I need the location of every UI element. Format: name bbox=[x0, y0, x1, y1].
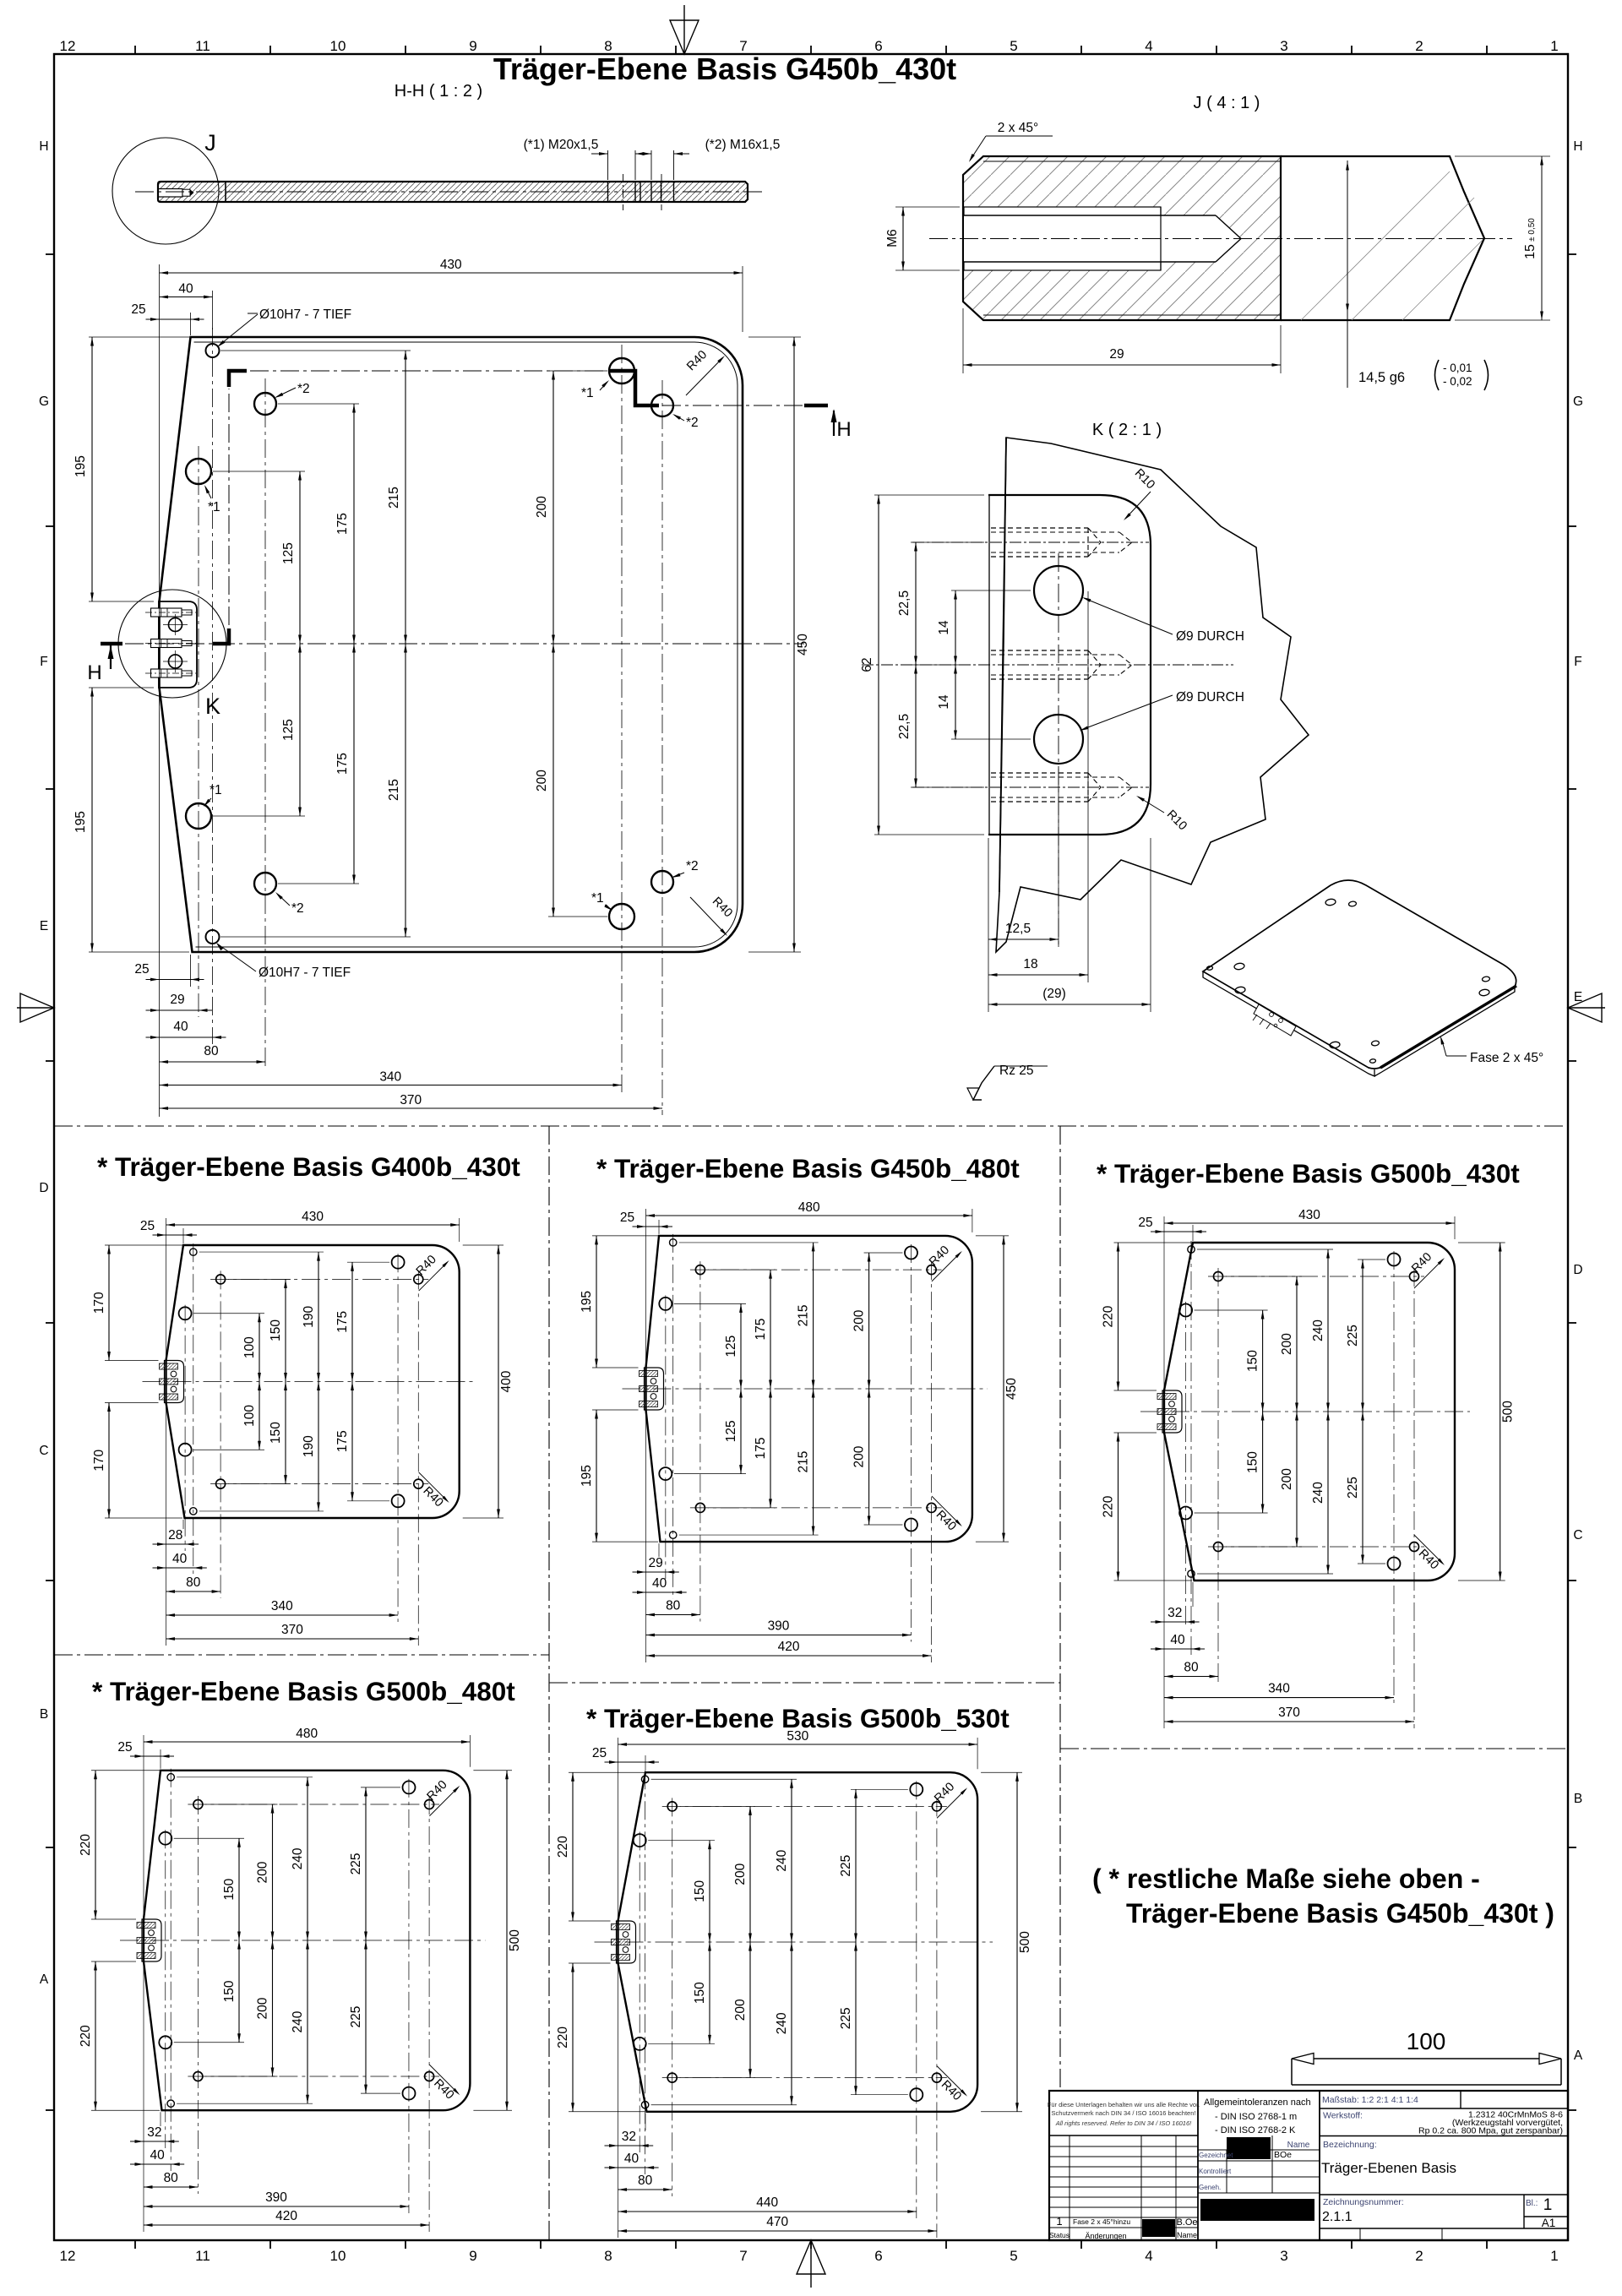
svg-text:175: 175 bbox=[754, 1319, 768, 1341]
svg-text:125: 125 bbox=[724, 1336, 738, 1357]
svg-text:6: 6 bbox=[874, 2248, 882, 2264]
svg-text:480: 480 bbox=[798, 1200, 820, 1215]
svg-text:150: 150 bbox=[269, 1319, 283, 1341]
svg-text:* Träger-Ebene Basis G500b_480: * Träger-Ebene Basis G500b_480t bbox=[92, 1676, 515, 1706]
svg-text:150: 150 bbox=[222, 1980, 237, 2002]
svg-text:29: 29 bbox=[1109, 347, 1124, 362]
svg-text:Kontrolliert: Kontrolliert bbox=[1199, 2168, 1232, 2175]
svg-text:340: 340 bbox=[1268, 1682, 1290, 1696]
svg-text:1: 1 bbox=[1056, 2215, 1062, 2228]
svg-text:9: 9 bbox=[469, 38, 476, 54]
svg-text:200: 200 bbox=[1280, 1333, 1294, 1355]
svg-text:14: 14 bbox=[937, 620, 951, 635]
svg-text:Änderungen: Änderungen bbox=[1085, 2232, 1126, 2240]
svg-text:125: 125 bbox=[281, 719, 296, 741]
svg-text:170: 170 bbox=[92, 1449, 106, 1471]
svg-text:7: 7 bbox=[739, 2248, 747, 2264]
svg-text:( * restliche Maße siehe oben: ( * restliche Maße siehe oben - bbox=[1092, 1863, 1480, 1894]
svg-text:E: E bbox=[40, 919, 48, 933]
svg-text:B: B bbox=[40, 1707, 48, 1722]
svg-text:175: 175 bbox=[335, 1430, 350, 1452]
svg-text:200: 200 bbox=[1280, 1468, 1294, 1490]
svg-text:H: H bbox=[39, 139, 48, 154]
svg-text:4: 4 bbox=[1145, 2248, 1152, 2264]
svg-text:220: 220 bbox=[79, 2025, 93, 2047]
svg-text:390: 390 bbox=[768, 1619, 790, 1634]
svg-text:100: 100 bbox=[242, 1336, 257, 1358]
svg-text:500: 500 bbox=[508, 1929, 522, 1951]
svg-text:25: 25 bbox=[620, 1211, 634, 1225]
svg-text:190: 190 bbox=[302, 1435, 316, 1457]
svg-text:Zeichnungsnummer:: Zeichnungsnummer: bbox=[1323, 2197, 1404, 2207]
svg-text:220: 220 bbox=[556, 1836, 570, 1858]
svg-text:Fase 2 x 45°hinzu: Fase 2 x 45°hinzu bbox=[1073, 2217, 1130, 2226]
svg-text:195: 195 bbox=[73, 455, 88, 477]
svg-text:25: 25 bbox=[592, 1746, 607, 1760]
svg-text:430: 430 bbox=[1298, 1208, 1320, 1222]
svg-text:4: 4 bbox=[1145, 38, 1152, 54]
svg-text:*1: *1 bbox=[581, 386, 594, 400]
svg-text:200: 200 bbox=[535, 496, 549, 518]
svg-text:2 x 45°: 2 x 45° bbox=[998, 121, 1038, 135]
svg-text:Maßstab: 1:2 2:1 4:1 1:: Maßstab: 1:2 2:1 4:1 1:4 bbox=[1322, 2095, 1418, 2105]
svg-text:Werkstoff:: Werkstoff: bbox=[1323, 2111, 1363, 2121]
svg-text:H: H bbox=[836, 418, 851, 441]
svg-text:11: 11 bbox=[195, 38, 210, 54]
svg-text:- DIN ISO 2768-1 m: - DIN ISO 2768-1 m bbox=[1215, 2112, 1297, 2122]
svg-text:125: 125 bbox=[281, 542, 296, 564]
svg-text:Gezeichnet: Gezeichnet bbox=[1199, 2152, 1233, 2159]
svg-text:240: 240 bbox=[291, 2010, 305, 2032]
svg-text:* Träger-Ebene Basis G400b_430: * Träger-Ebene Basis G400b_430t bbox=[97, 1151, 520, 1182]
svg-text:C: C bbox=[39, 1444, 48, 1458]
svg-text:12: 12 bbox=[60, 38, 76, 54]
svg-text:25: 25 bbox=[1138, 1216, 1152, 1230]
svg-text:480: 480 bbox=[296, 1727, 318, 1741]
svg-text:11: 11 bbox=[195, 2248, 210, 2264]
svg-text:80: 80 bbox=[1184, 1661, 1199, 1675]
svg-text:220: 220 bbox=[79, 1834, 93, 1856]
svg-text:Name: Name bbox=[1177, 2231, 1197, 2239]
svg-text:150: 150 bbox=[269, 1422, 283, 1444]
svg-text:1: 1 bbox=[1543, 2196, 1553, 2214]
svg-text:* Träger-Ebene Basis G450b_480: * Träger-Ebene Basis G450b_480t bbox=[596, 1153, 1020, 1183]
svg-text:150: 150 bbox=[1246, 1451, 1260, 1473]
svg-text:Ø9 DURCH: Ø9 DURCH bbox=[1176, 629, 1244, 644]
svg-text:(*2) M16x1,5: (*2) M16x1,5 bbox=[705, 138, 781, 152]
svg-text:Bezeichnung:: Bezeichnung: bbox=[1323, 2140, 1377, 2150]
svg-text:5: 5 bbox=[1010, 38, 1017, 54]
svg-text:40: 40 bbox=[1170, 1633, 1185, 1647]
svg-text:10: 10 bbox=[330, 38, 346, 54]
svg-text:175: 175 bbox=[335, 1311, 350, 1333]
svg-text:14: 14 bbox=[937, 694, 951, 710]
svg-text:25: 25 bbox=[140, 1219, 155, 1233]
svg-text:Geneh.: Geneh. bbox=[1199, 2184, 1221, 2191]
svg-text:29: 29 bbox=[170, 993, 184, 1007]
svg-text:Schutzvermerk nach DIN 34 / IS: Schutzvermerk nach DIN 34 / ISO 16016 be… bbox=[1052, 2109, 1196, 2117]
svg-text:± 0,50: ± 0,50 bbox=[1527, 218, 1537, 242]
svg-text:8: 8 bbox=[604, 2248, 612, 2264]
svg-text:M6: M6 bbox=[885, 229, 900, 248]
svg-text:215: 215 bbox=[387, 779, 401, 801]
svg-text:195: 195 bbox=[580, 1291, 594, 1313]
svg-text:340: 340 bbox=[271, 1599, 293, 1613]
svg-text:470: 470 bbox=[766, 2215, 788, 2229]
svg-text:430: 430 bbox=[302, 1210, 324, 1224]
svg-text:100: 100 bbox=[1407, 2028, 1446, 2054]
svg-text:5: 5 bbox=[1010, 2248, 1017, 2264]
svg-text:80: 80 bbox=[164, 2171, 179, 2185]
svg-text:400: 400 bbox=[499, 1370, 514, 1392]
svg-text:100: 100 bbox=[242, 1405, 257, 1427]
svg-text:440: 440 bbox=[756, 2195, 778, 2210]
svg-text:K ( 2 : 1 ): K ( 2 : 1 ) bbox=[1092, 421, 1162, 439]
svg-text:195: 195 bbox=[73, 811, 88, 833]
svg-text:28: 28 bbox=[168, 1528, 182, 1542]
svg-text:175: 175 bbox=[754, 1438, 768, 1460]
svg-text:190: 190 bbox=[302, 1305, 316, 1327]
svg-text:BOe: BOe bbox=[1274, 2150, 1292, 2160]
svg-text:80: 80 bbox=[638, 2174, 653, 2188]
svg-text:*1: *1 bbox=[208, 500, 220, 514]
svg-text:29: 29 bbox=[649, 1556, 663, 1570]
svg-text:12: 12 bbox=[60, 2248, 76, 2264]
svg-text:40: 40 bbox=[150, 2148, 165, 2163]
svg-text:(29): (29) bbox=[1042, 987, 1066, 1001]
svg-text:500: 500 bbox=[1501, 1401, 1516, 1423]
svg-text:215: 215 bbox=[797, 1451, 811, 1473]
svg-text:Träger-Ebene Basis G450b_430t: Träger-Ebene Basis G450b_430t bbox=[493, 52, 956, 86]
svg-text:200: 200 bbox=[256, 1861, 270, 1883]
svg-text:- 0,02: - 0,02 bbox=[1443, 375, 1472, 388]
svg-text:420: 420 bbox=[778, 1640, 800, 1654]
svg-text:*2: *2 bbox=[297, 382, 310, 396]
svg-text:225: 225 bbox=[839, 2007, 853, 2029]
svg-text:150: 150 bbox=[693, 1880, 707, 1902]
svg-text:15: 15 bbox=[1523, 244, 1538, 259]
svg-text:40: 40 bbox=[172, 1552, 188, 1566]
svg-text:D: D bbox=[39, 1181, 48, 1195]
svg-text:*1: *1 bbox=[210, 783, 222, 797]
svg-text:A1: A1 bbox=[1542, 2217, 1556, 2229]
svg-text:Ø10H7 - 7 TIEF: Ø10H7 - 7 TIEF bbox=[259, 307, 351, 322]
svg-text:Name: Name bbox=[1287, 2141, 1310, 2150]
svg-text:32: 32 bbox=[1168, 1606, 1182, 1620]
svg-text:Bl.:: Bl.: bbox=[1526, 2199, 1538, 2208]
svg-text:200: 200 bbox=[535, 770, 549, 792]
svg-text:200: 200 bbox=[852, 1309, 867, 1331]
svg-text:J ( 4 : 1 ): J ( 4 : 1 ) bbox=[1194, 94, 1260, 112]
svg-text:Ø9 DURCH: Ø9 DURCH bbox=[1176, 690, 1244, 705]
svg-text:200: 200 bbox=[733, 1999, 748, 2021]
svg-text:32: 32 bbox=[147, 2125, 161, 2140]
svg-text:Ø10H7 - 7 TIEF: Ø10H7 - 7 TIEF bbox=[259, 966, 351, 980]
svg-text:40: 40 bbox=[178, 282, 193, 297]
svg-text:220: 220 bbox=[1102, 1495, 1116, 1517]
svg-text:225: 225 bbox=[349, 2006, 363, 2028]
svg-text:H: H bbox=[87, 661, 101, 684]
svg-text:240: 240 bbox=[1311, 1319, 1325, 1341]
svg-text:* Träger-Ebene Basis G500b_430: * Träger-Ebene Basis G500b_430t bbox=[1097, 1158, 1520, 1189]
svg-text:175: 175 bbox=[335, 513, 350, 535]
svg-text:530: 530 bbox=[787, 1729, 808, 1744]
svg-text:220: 220 bbox=[556, 2027, 570, 2048]
svg-text:240: 240 bbox=[291, 1847, 305, 1869]
svg-text:H-H ( 1 : 2 ): H-H ( 1 : 2 ) bbox=[395, 82, 482, 101]
svg-text:3: 3 bbox=[1280, 2248, 1287, 2264]
svg-text:Träger-Ebene Basis G450b_430t: Träger-Ebene Basis G450b_430t ) bbox=[1126, 1898, 1554, 1929]
svg-text:390: 390 bbox=[265, 2190, 287, 2205]
svg-text:40: 40 bbox=[652, 1576, 667, 1591]
svg-text:25: 25 bbox=[134, 962, 149, 977]
svg-text:195: 195 bbox=[580, 1465, 594, 1487]
svg-text:(*1) M20x1,5: (*1) M20x1,5 bbox=[524, 138, 599, 152]
svg-text:1: 1 bbox=[1550, 38, 1558, 54]
svg-text:370: 370 bbox=[281, 1623, 303, 1637]
svg-text:420: 420 bbox=[275, 2209, 297, 2223]
svg-text:340: 340 bbox=[379, 1070, 401, 1085]
svg-text:430: 430 bbox=[440, 258, 462, 272]
svg-text:200: 200 bbox=[733, 1863, 748, 1885]
svg-text:220: 220 bbox=[1102, 1305, 1116, 1327]
svg-text:215: 215 bbox=[387, 487, 401, 509]
svg-text:G: G bbox=[39, 394, 49, 409]
svg-text:Allgemeintoleranzen nach: Allgemeintoleranzen nach bbox=[1204, 2097, 1311, 2108]
svg-text:H: H bbox=[1573, 139, 1582, 154]
svg-text:All rights reserved. Refer to: All rights reserved. Refer to DIN 34 / I… bbox=[1055, 2119, 1192, 2127]
svg-text:2: 2 bbox=[1415, 38, 1423, 54]
svg-text:225: 225 bbox=[1346, 1477, 1360, 1499]
svg-text:25: 25 bbox=[131, 302, 145, 317]
svg-text:9: 9 bbox=[469, 2248, 476, 2264]
svg-text:240: 240 bbox=[775, 1849, 789, 1871]
svg-text:80: 80 bbox=[186, 1575, 201, 1590]
svg-text:B.Oe: B.Oe bbox=[1176, 2217, 1197, 2228]
svg-text:2: 2 bbox=[1415, 2248, 1423, 2264]
svg-text:D: D bbox=[1573, 1263, 1582, 1277]
svg-text:14,5 g6: 14,5 g6 bbox=[1358, 370, 1405, 385]
svg-text:32: 32 bbox=[622, 2130, 636, 2144]
svg-text:- DIN ISO 2768-2 K: - DIN ISO 2768-2 K bbox=[1215, 2125, 1296, 2135]
svg-text:22,5: 22,5 bbox=[897, 590, 912, 616]
svg-text:F: F bbox=[1574, 655, 1581, 669]
svg-text:A: A bbox=[40, 1972, 49, 1987]
svg-text:150: 150 bbox=[1246, 1350, 1260, 1372]
svg-text:40: 40 bbox=[173, 1020, 188, 1034]
svg-text:225: 225 bbox=[839, 1855, 853, 1877]
svg-text:Rp 0.2 ca. 800 Mpa, gut zerspa: Rp 0.2 ca. 800 Mpa, gut zerspanbar) bbox=[1418, 2126, 1563, 2136]
svg-text:B: B bbox=[1574, 1792, 1582, 1806]
svg-text:10: 10 bbox=[330, 2248, 346, 2264]
svg-text:- 0,01: - 0,01 bbox=[1443, 362, 1472, 374]
svg-text:3: 3 bbox=[1280, 38, 1287, 54]
svg-text:450: 450 bbox=[796, 634, 810, 656]
svg-text:25: 25 bbox=[117, 1740, 132, 1755]
svg-text:*2: *2 bbox=[291, 901, 304, 916]
svg-text:80: 80 bbox=[204, 1044, 219, 1058]
svg-text:450: 450 bbox=[1004, 1378, 1019, 1400]
svg-text:225: 225 bbox=[1346, 1325, 1360, 1347]
svg-text:G: G bbox=[1573, 394, 1583, 409]
svg-text:Status: Status bbox=[1049, 2231, 1070, 2239]
svg-text:62: 62 bbox=[860, 657, 874, 672]
svg-text:Für diese Unterlagen behalten: Für diese Unterlagen behalten wir uns al… bbox=[1048, 2101, 1200, 2108]
svg-text:1: 1 bbox=[1550, 2248, 1558, 2264]
svg-text:225: 225 bbox=[349, 1853, 363, 1875]
svg-text:22,5: 22,5 bbox=[897, 714, 912, 739]
svg-text:A: A bbox=[1574, 2048, 1583, 2063]
svg-text:40: 40 bbox=[624, 2152, 640, 2166]
svg-text:200: 200 bbox=[256, 1997, 270, 2019]
svg-text:125: 125 bbox=[724, 1420, 738, 1442]
svg-text:*1: *1 bbox=[591, 891, 604, 906]
svg-text:500: 500 bbox=[1018, 1931, 1032, 1953]
svg-text:240: 240 bbox=[1311, 1482, 1325, 1504]
svg-text:200: 200 bbox=[852, 1445, 867, 1467]
svg-text:215: 215 bbox=[797, 1305, 811, 1327]
svg-text:K: K bbox=[205, 694, 220, 719]
svg-text:170: 170 bbox=[92, 1292, 106, 1314]
svg-text:*2: *2 bbox=[686, 416, 699, 430]
svg-text:370: 370 bbox=[1278, 1706, 1300, 1720]
svg-text:J: J bbox=[204, 130, 216, 155]
svg-text:F: F bbox=[40, 655, 47, 669]
svg-text:175: 175 bbox=[335, 753, 350, 775]
svg-text:80: 80 bbox=[666, 1599, 681, 1613]
svg-text:18: 18 bbox=[1023, 957, 1037, 971]
svg-text:2.1.1: 2.1.1 bbox=[1322, 2210, 1353, 2224]
svg-text:C: C bbox=[1573, 1528, 1582, 1542]
svg-text:12,5: 12,5 bbox=[1005, 922, 1031, 936]
svg-text:370: 370 bbox=[400, 1093, 422, 1107]
svg-text:Träger-Ebenen Basis: Träger-Ebenen Basis bbox=[1321, 2160, 1456, 2176]
svg-text:150: 150 bbox=[693, 1982, 707, 2004]
svg-text:240: 240 bbox=[775, 2012, 789, 2034]
svg-text:Fase 2 x 45°: Fase 2 x 45° bbox=[1470, 1051, 1543, 1065]
svg-text:150: 150 bbox=[222, 1878, 237, 1900]
svg-text:*2: *2 bbox=[686, 859, 699, 873]
